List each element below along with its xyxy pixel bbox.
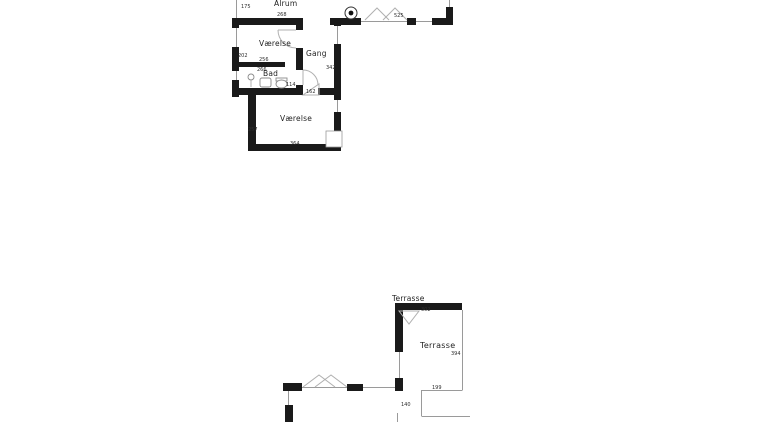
wall-recess bbox=[326, 131, 342, 147]
dimension-label: 140 bbox=[401, 402, 411, 408]
dimension-label: 302 bbox=[421, 307, 431, 313]
room-label-alrum: Alrum bbox=[274, 0, 297, 8]
upper-floor-plan: Alrum Værelse Gang Bad Værelse 175 268 2… bbox=[232, 0, 453, 151]
wall-segment bbox=[285, 405, 293, 422]
dimension-label: 114 bbox=[286, 82, 296, 88]
room-label-vaerelse-main: Værelse bbox=[280, 114, 312, 123]
wall-segment bbox=[296, 48, 303, 70]
lower-floor-plan: Terrasse Terrasse 302 394 199 140 bbox=[283, 294, 470, 422]
wall-segment bbox=[232, 47, 239, 71]
wall-segment bbox=[232, 18, 239, 28]
dimension-label: 364 bbox=[290, 141, 300, 147]
dimension-label: 199 bbox=[432, 385, 442, 391]
dimension-label: 525 bbox=[394, 13, 404, 19]
wall-segment bbox=[395, 378, 403, 391]
wall-segment bbox=[232, 88, 300, 95]
dimension-label: 342 bbox=[326, 65, 336, 71]
room-label-vaerelse-top: Værelse bbox=[259, 39, 291, 48]
wall-segment bbox=[232, 18, 303, 25]
room-label-terrasse: Terrasse bbox=[419, 341, 455, 350]
dimension-label: 162 bbox=[306, 89, 316, 95]
wall-segment bbox=[248, 88, 256, 151]
window-icon bbox=[303, 375, 335, 387]
shower-icon bbox=[248, 74, 254, 87]
wall-segment bbox=[330, 18, 361, 25]
wall-segment bbox=[395, 303, 403, 352]
sink-icon bbox=[260, 78, 271, 87]
dimension-label: 175 bbox=[241, 4, 251, 10]
dimension-label: 266 bbox=[257, 67, 267, 73]
dimension-label: 394 bbox=[451, 351, 461, 357]
lamp-icon bbox=[345, 7, 357, 19]
floor-plan: Alrum Værelse Gang Bad Værelse 175 268 2… bbox=[0, 0, 768, 422]
dimension-label: 256 bbox=[259, 57, 269, 63]
wall-segment bbox=[446, 7, 453, 25]
terrace-title: Terrasse bbox=[391, 294, 425, 303]
floor-plan-page: Alrum Værelse Gang Bad Værelse 175 268 2… bbox=[0, 0, 768, 422]
wall-segment bbox=[283, 383, 302, 391]
wall-segment bbox=[407, 18, 416, 25]
wall-segment bbox=[334, 44, 341, 100]
room-label-gang: Gang bbox=[306, 49, 327, 58]
window-icon bbox=[315, 375, 347, 387]
wall-segment bbox=[296, 25, 303, 30]
wall-segment bbox=[347, 384, 363, 391]
dimension-label: 202 bbox=[238, 53, 248, 59]
door-swing-icon bbox=[303, 70, 318, 85]
dimension-label: 257 bbox=[248, 127, 258, 133]
dimension-label: 268 bbox=[277, 12, 287, 18]
